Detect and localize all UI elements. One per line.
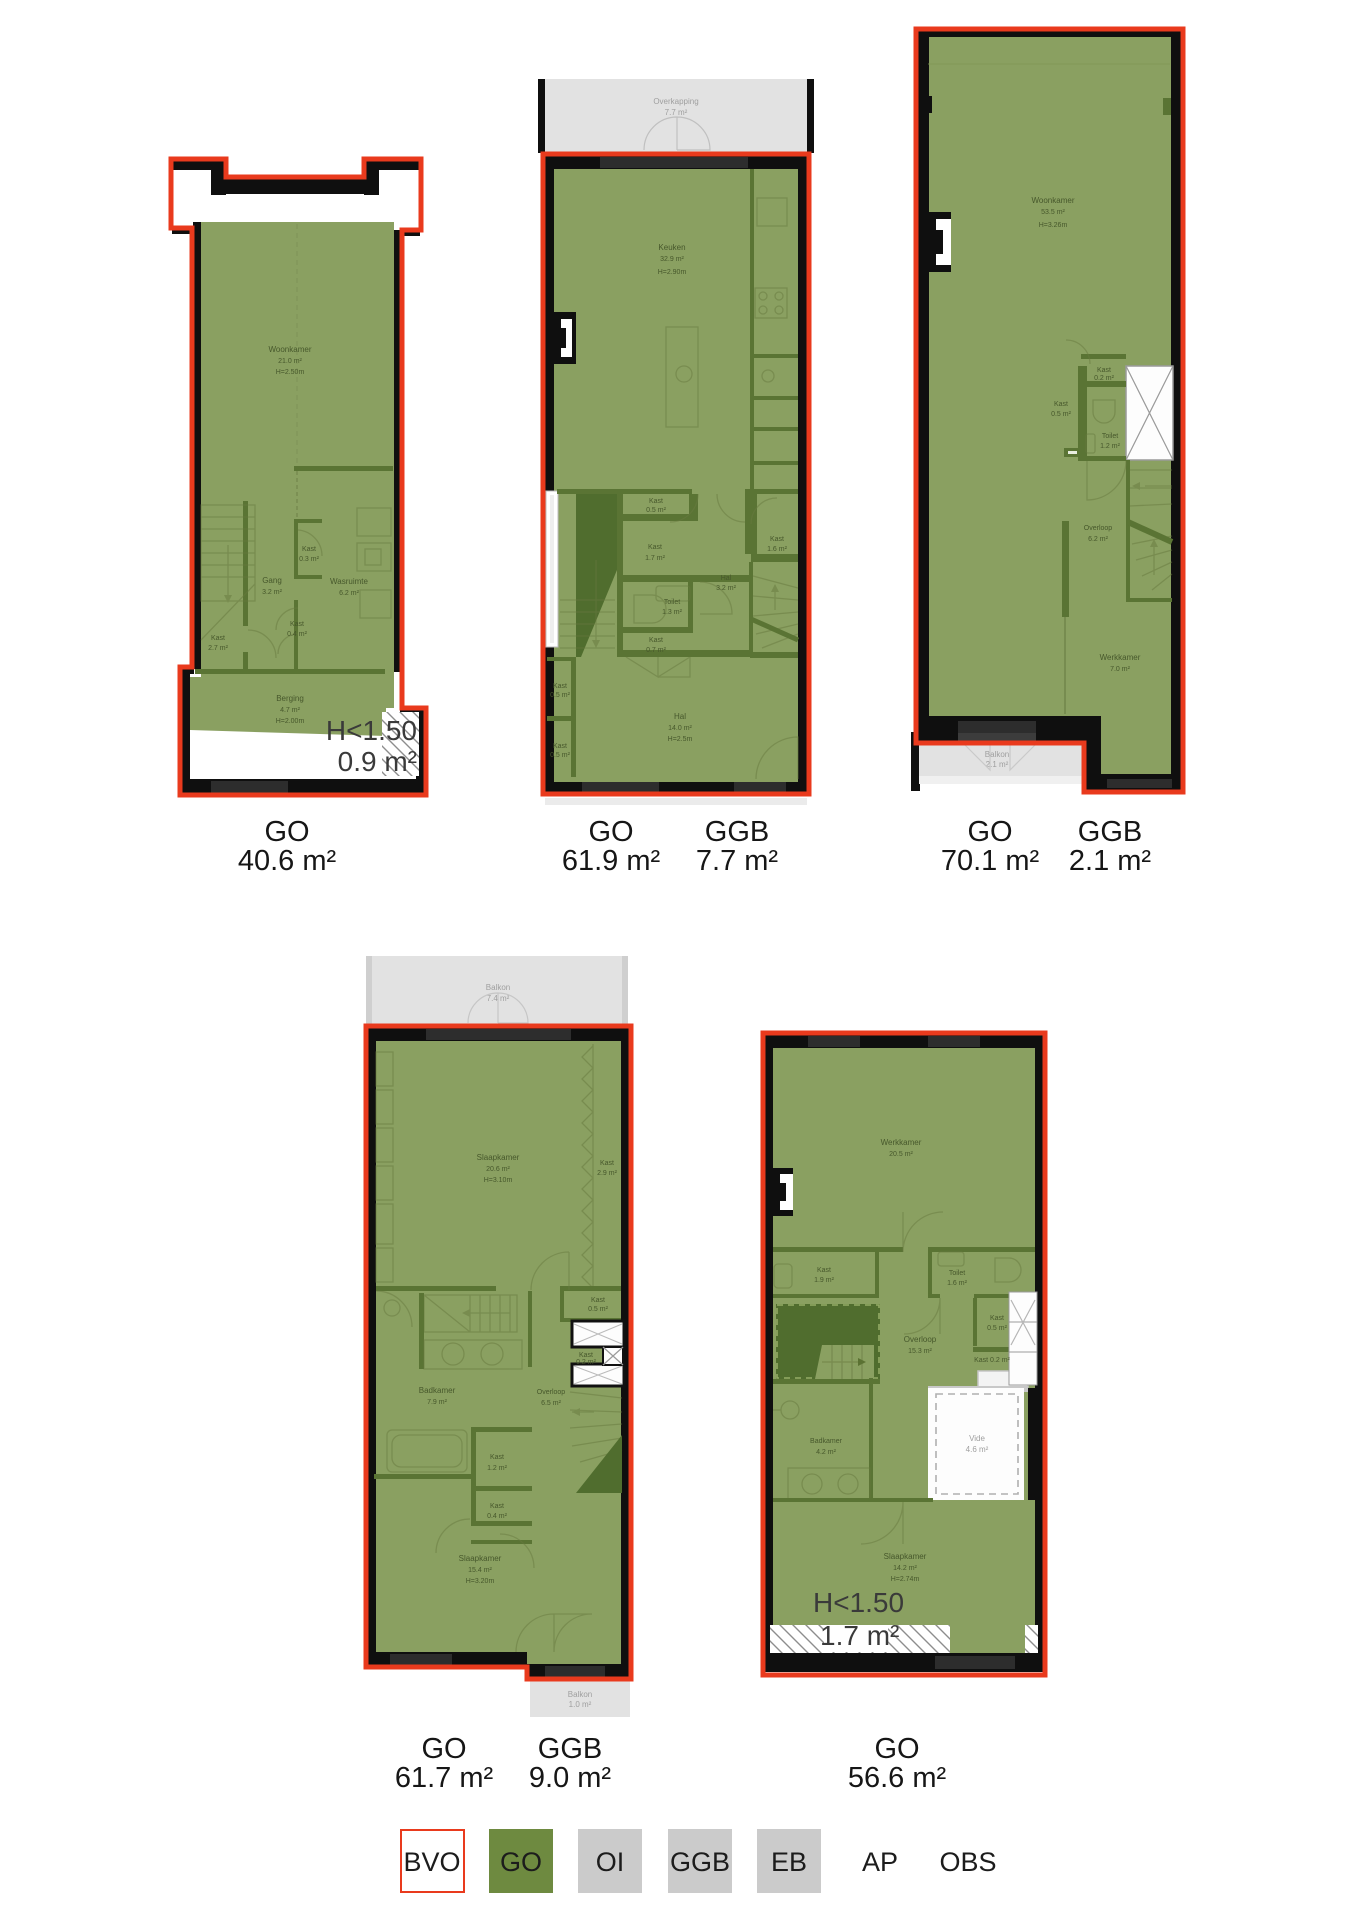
svg-text:Woonkamer: Woonkamer (269, 345, 312, 354)
svg-text:3.2 m²: 3.2 m² (716, 585, 737, 592)
svg-text:GO: GO (967, 816, 1012, 848)
svg-text:Kast: Kast (1097, 367, 1111, 374)
svg-text:H=2.00m: H=2.00m (276, 718, 305, 725)
svg-text:Overloop: Overloop (1084, 525, 1113, 532)
svg-text:6.2 m²: 6.2 m² (1088, 536, 1109, 543)
svg-text:32.9 m²: 32.9 m² (660, 256, 684, 263)
svg-text:Kast: Kast (648, 544, 662, 551)
svg-text:Slaapkamer: Slaapkamer (459, 1554, 502, 1563)
svg-text:Badkamer: Badkamer (810, 1438, 843, 1445)
svg-text:GO: GO (500, 1847, 542, 1877)
svg-text:1.7 m²: 1.7 m² (645, 555, 666, 562)
svg-text:Berging: Berging (276, 694, 304, 703)
svg-text:1.6 m²: 1.6 m² (947, 1280, 968, 1287)
svg-text:H=3.26m: H=3.26m (1039, 222, 1068, 229)
svg-text:0.5 m²: 0.5 m² (1051, 411, 1072, 418)
svg-text:1.0 m²: 1.0 m² (569, 1700, 592, 1709)
svg-text:GO: GO (264, 816, 309, 848)
svg-text:2.7 m²: 2.7 m² (208, 645, 229, 652)
svg-text:Kast: Kast (591, 1297, 605, 1304)
svg-text:Hal: Hal (674, 712, 686, 721)
svg-text:61.7 m²: 61.7 m² (395, 1762, 494, 1794)
svg-text:Keuken: Keuken (658, 243, 685, 252)
svg-text:2.1 m²: 2.1 m² (1069, 845, 1152, 877)
svg-text:EB: EB (771, 1847, 807, 1877)
svg-text:Kast: Kast (490, 1503, 504, 1510)
svg-text:Toilet: Toilet (664, 599, 680, 606)
svg-text:Slaapkamer: Slaapkamer (884, 1552, 927, 1561)
svg-text:GGB: GGB (1078, 816, 1142, 848)
svg-text:0.2 m²: 0.2 m² (576, 1359, 597, 1366)
svg-text:2.1 m²: 2.1 m² (986, 760, 1009, 769)
svg-text:H=2.50m: H=2.50m (276, 369, 305, 376)
svg-text:H=2.74m: H=2.74m (891, 1576, 920, 1583)
svg-text:2.9 m²: 2.9 m² (597, 1170, 618, 1177)
svg-text:GGB: GGB (705, 816, 769, 848)
svg-text:Woonkamer: Woonkamer (1032, 196, 1075, 205)
svg-text:GGB: GGB (538, 1733, 602, 1765)
svg-text:14.2 m²: 14.2 m² (893, 1565, 917, 1572)
svg-text:Overloop: Overloop (904, 1335, 937, 1344)
svg-text:0.5 m²: 0.5 m² (550, 752, 571, 759)
svg-text:0.5 m²: 0.5 m² (550, 692, 571, 699)
svg-text:GO: GO (421, 1733, 466, 1765)
svg-text:3.2 m²: 3.2 m² (262, 589, 283, 596)
svg-text:Overkapping: Overkapping (653, 97, 698, 106)
svg-text:15.4 m²: 15.4 m² (468, 1567, 492, 1574)
svg-text:Hal: Hal (721, 575, 732, 582)
svg-text:Gang: Gang (262, 576, 282, 585)
svg-text:Kast: Kast (211, 635, 225, 642)
svg-text:20.6 m²: 20.6 m² (486, 1166, 510, 1173)
svg-text:Kast: Kast (600, 1160, 614, 1167)
svg-text:1.9 m²: 1.9 m² (814, 1277, 835, 1284)
svg-text:21.0 m²: 21.0 m² (278, 358, 302, 365)
svg-text:56.6 m²: 56.6 m² (848, 1762, 947, 1794)
svg-text:Kast: Kast (649, 637, 663, 644)
svg-text:7.0 m²: 7.0 m² (1110, 666, 1131, 673)
svg-text:7.7 m²: 7.7 m² (696, 845, 779, 877)
svg-text:OI: OI (596, 1847, 625, 1877)
svg-text:Balkon: Balkon (486, 983, 510, 992)
svg-text:H=3.10m: H=3.10m (484, 1177, 513, 1184)
svg-text:H<1.50: H<1.50 (326, 715, 417, 746)
svg-text:Werkkamer: Werkkamer (1100, 653, 1141, 662)
svg-text:Toilet: Toilet (949, 1270, 965, 1277)
svg-text:4.6 m²: 4.6 m² (966, 1445, 989, 1454)
svg-text:4.7 m²: 4.7 m² (280, 707, 301, 714)
svg-text:15.3 m²: 15.3 m² (908, 1348, 932, 1355)
svg-text:1.2 m²: 1.2 m² (1100, 443, 1121, 450)
svg-text:GO: GO (874, 1733, 919, 1765)
svg-text:61.9 m²: 61.9 m² (562, 845, 661, 877)
svg-text:7.9 m²: 7.9 m² (427, 1399, 448, 1406)
svg-text:Wasruimte: Wasruimte (330, 577, 368, 586)
svg-text:0.7 m²: 0.7 m² (646, 647, 667, 654)
svg-text:Kast: Kast (553, 683, 567, 690)
svg-text:GGB: GGB (670, 1847, 730, 1877)
svg-text:Kast: Kast (579, 1352, 593, 1359)
svg-text:Kast: Kast (770, 536, 784, 543)
svg-text:Kast 0.2 m²: Kast 0.2 m² (974, 1357, 1010, 1364)
svg-text:Werkkamer: Werkkamer (881, 1138, 922, 1147)
svg-text:70.1 m²: 70.1 m² (941, 845, 1040, 877)
svg-text:Balkon: Balkon (568, 1690, 592, 1699)
svg-text:0.5 m²: 0.5 m² (987, 1325, 1008, 1332)
svg-text:Toilet: Toilet (1102, 433, 1118, 440)
svg-text:14.0 m²: 14.0 m² (668, 725, 692, 732)
svg-text:6.5 m²: 6.5 m² (541, 1400, 562, 1407)
svg-text:Badkamer: Badkamer (419, 1386, 456, 1395)
svg-text:H<1.50: H<1.50 (813, 1587, 904, 1618)
svg-text:Kast: Kast (553, 743, 567, 750)
svg-text:H=2.5m: H=2.5m (668, 736, 693, 743)
svg-text:Kast: Kast (302, 546, 316, 553)
svg-text:7.7 m²: 7.7 m² (665, 108, 688, 117)
svg-text:20.5 m²: 20.5 m² (889, 1151, 913, 1158)
svg-text:6.2 m²: 6.2 m² (339, 590, 360, 597)
svg-text:9.0 m²: 9.0 m² (529, 1762, 612, 1794)
svg-text:Kast: Kast (649, 498, 663, 505)
svg-text:4.2 m²: 4.2 m² (816, 1449, 837, 1456)
svg-text:H=2.90m: H=2.90m (658, 269, 687, 276)
svg-text:40.6 m²: 40.6 m² (238, 845, 337, 877)
svg-text:Kast: Kast (1054, 401, 1068, 408)
svg-text:53.5 m²: 53.5 m² (1041, 209, 1065, 216)
svg-text:1.3 m²: 1.3 m² (662, 609, 683, 616)
svg-text:0.4 m²: 0.4 m² (287, 631, 308, 638)
svg-text:1.7 m²: 1.7 m² (820, 1620, 899, 1651)
svg-text:OBS: OBS (939, 1847, 996, 1877)
svg-text:BVO: BVO (403, 1847, 460, 1877)
svg-text:0.4 m²: 0.4 m² (487, 1513, 508, 1520)
svg-text:Vide: Vide (969, 1434, 985, 1443)
svg-text:AP: AP (862, 1847, 898, 1877)
svg-text:1.2 m²: 1.2 m² (487, 1465, 508, 1472)
svg-text:0.5 m²: 0.5 m² (588, 1306, 609, 1313)
svg-text:Slaapkamer: Slaapkamer (477, 1153, 520, 1162)
svg-text:Overloop: Overloop (537, 1389, 566, 1396)
svg-text:0.9 m²: 0.9 m² (338, 746, 417, 777)
svg-text:Kast: Kast (817, 1267, 831, 1274)
svg-text:0.2 m²: 0.2 m² (1094, 375, 1115, 382)
svg-text:Kast: Kast (490, 1454, 504, 1461)
svg-text:Kast: Kast (990, 1315, 1004, 1322)
svg-text:Balkon: Balkon (985, 750, 1009, 759)
svg-text:0.5 m²: 0.5 m² (646, 507, 667, 514)
svg-text:GO: GO (588, 816, 633, 848)
svg-text:Kast: Kast (290, 621, 304, 628)
svg-text:1.6 m²: 1.6 m² (767, 546, 788, 553)
svg-text:H=3.20m: H=3.20m (466, 1578, 495, 1585)
svg-text:0.3 m²: 0.3 m² (299, 556, 320, 563)
